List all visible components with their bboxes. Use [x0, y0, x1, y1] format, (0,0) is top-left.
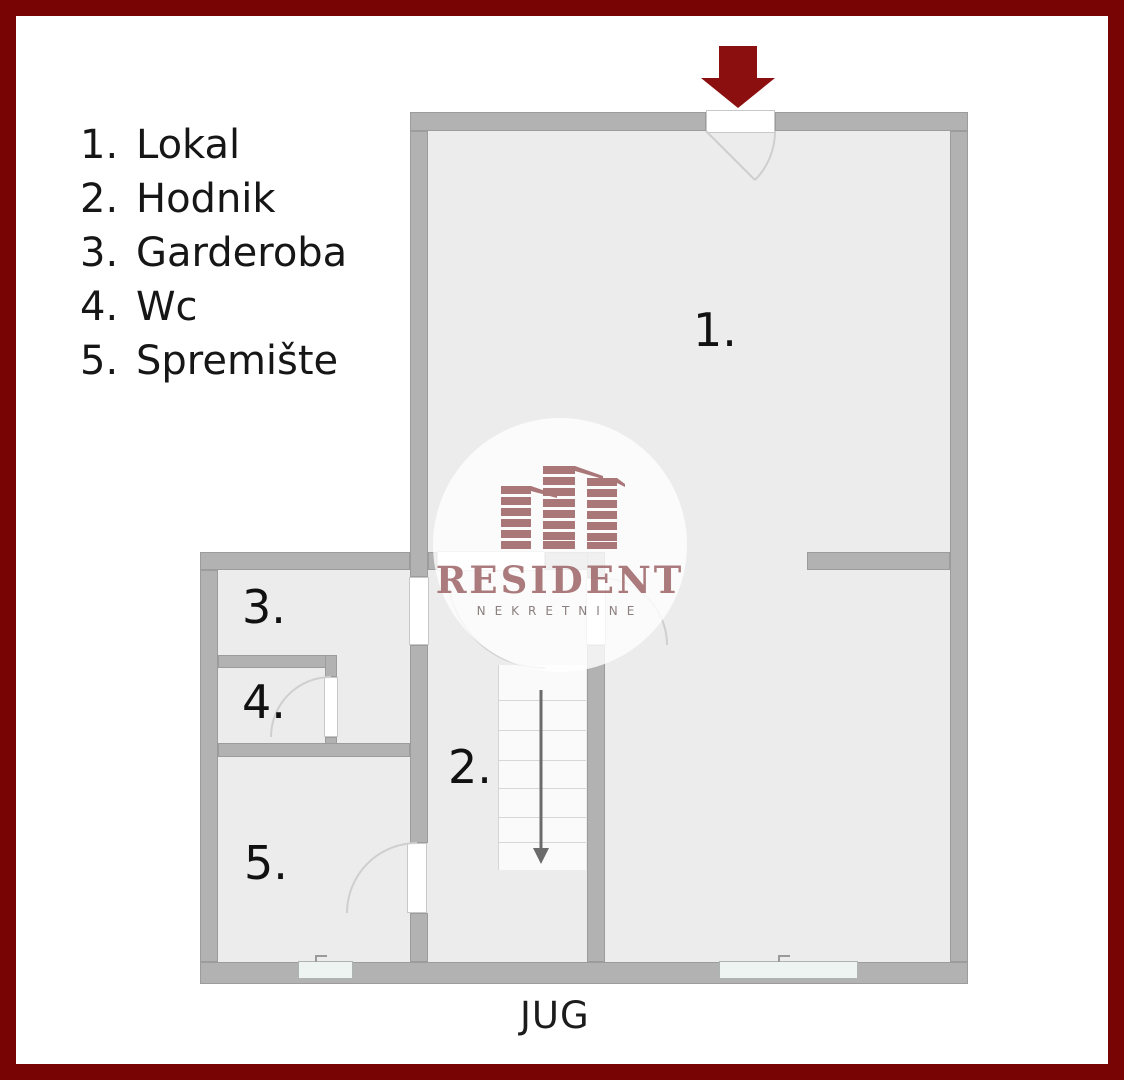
- room-label-5: 5.: [244, 836, 288, 890]
- watermark-tagline: NEKRETNINE: [433, 604, 687, 618]
- door-arc-storage: [347, 843, 417, 913]
- room-label-3: 3.: [242, 580, 286, 634]
- buildings-icon: [495, 464, 625, 550]
- stairs-direction-arrow: [533, 690, 549, 864]
- legend-number: 3.: [80, 226, 136, 280]
- entrance-arrow-shaft: [719, 46, 757, 80]
- room-legend: 1. Lokal 2. Hodnik 3. Garderoba 4. Wc 5.…: [80, 118, 347, 388]
- legend-label: Garderoba: [136, 226, 347, 280]
- legend-item: 4. Wc: [80, 280, 347, 334]
- legend-number: 4.: [80, 280, 136, 334]
- legend-number: 5.: [80, 334, 136, 388]
- frame-top: [0, 0, 1124, 16]
- legend-item: 5. Spremište: [80, 334, 347, 388]
- compass-south-label: JUG: [520, 994, 590, 1037]
- room-label-2: 2.: [448, 740, 492, 794]
- room-label-1: 1.: [693, 303, 737, 357]
- frame-bottom: [0, 1064, 1124, 1080]
- legend-item: 3. Garderoba: [80, 226, 347, 280]
- legend-label: Wc: [136, 280, 198, 334]
- legend-item: 2. Hodnik: [80, 172, 347, 226]
- legend-label: Hodnik: [136, 172, 276, 226]
- window-tick: [316, 956, 327, 962]
- door-leaf-entrance: [706, 131, 755, 180]
- room-label-4: 4.: [242, 675, 286, 729]
- frame-right: [1108, 0, 1124, 1080]
- legend-item: 1. Lokal: [80, 118, 347, 172]
- window-tick: [779, 956, 790, 962]
- agency-watermark: RESIDENT NEKRETNINE: [433, 418, 687, 672]
- legend-number: 2.: [80, 172, 136, 226]
- door-arc-entrance: [755, 131, 775, 180]
- frame-left: [0, 0, 16, 1080]
- legend-label: Lokal: [136, 118, 240, 172]
- watermark-brand: RESIDENT: [433, 558, 687, 602]
- legend-label: Spremište: [136, 334, 338, 388]
- legend-number: 1.: [80, 118, 136, 172]
- floor-plan-page: 1. Lokal 2. Hodnik 3. Garderoba 4. Wc 5.…: [0, 0, 1124, 1080]
- entrance-arrow-head: [701, 78, 775, 108]
